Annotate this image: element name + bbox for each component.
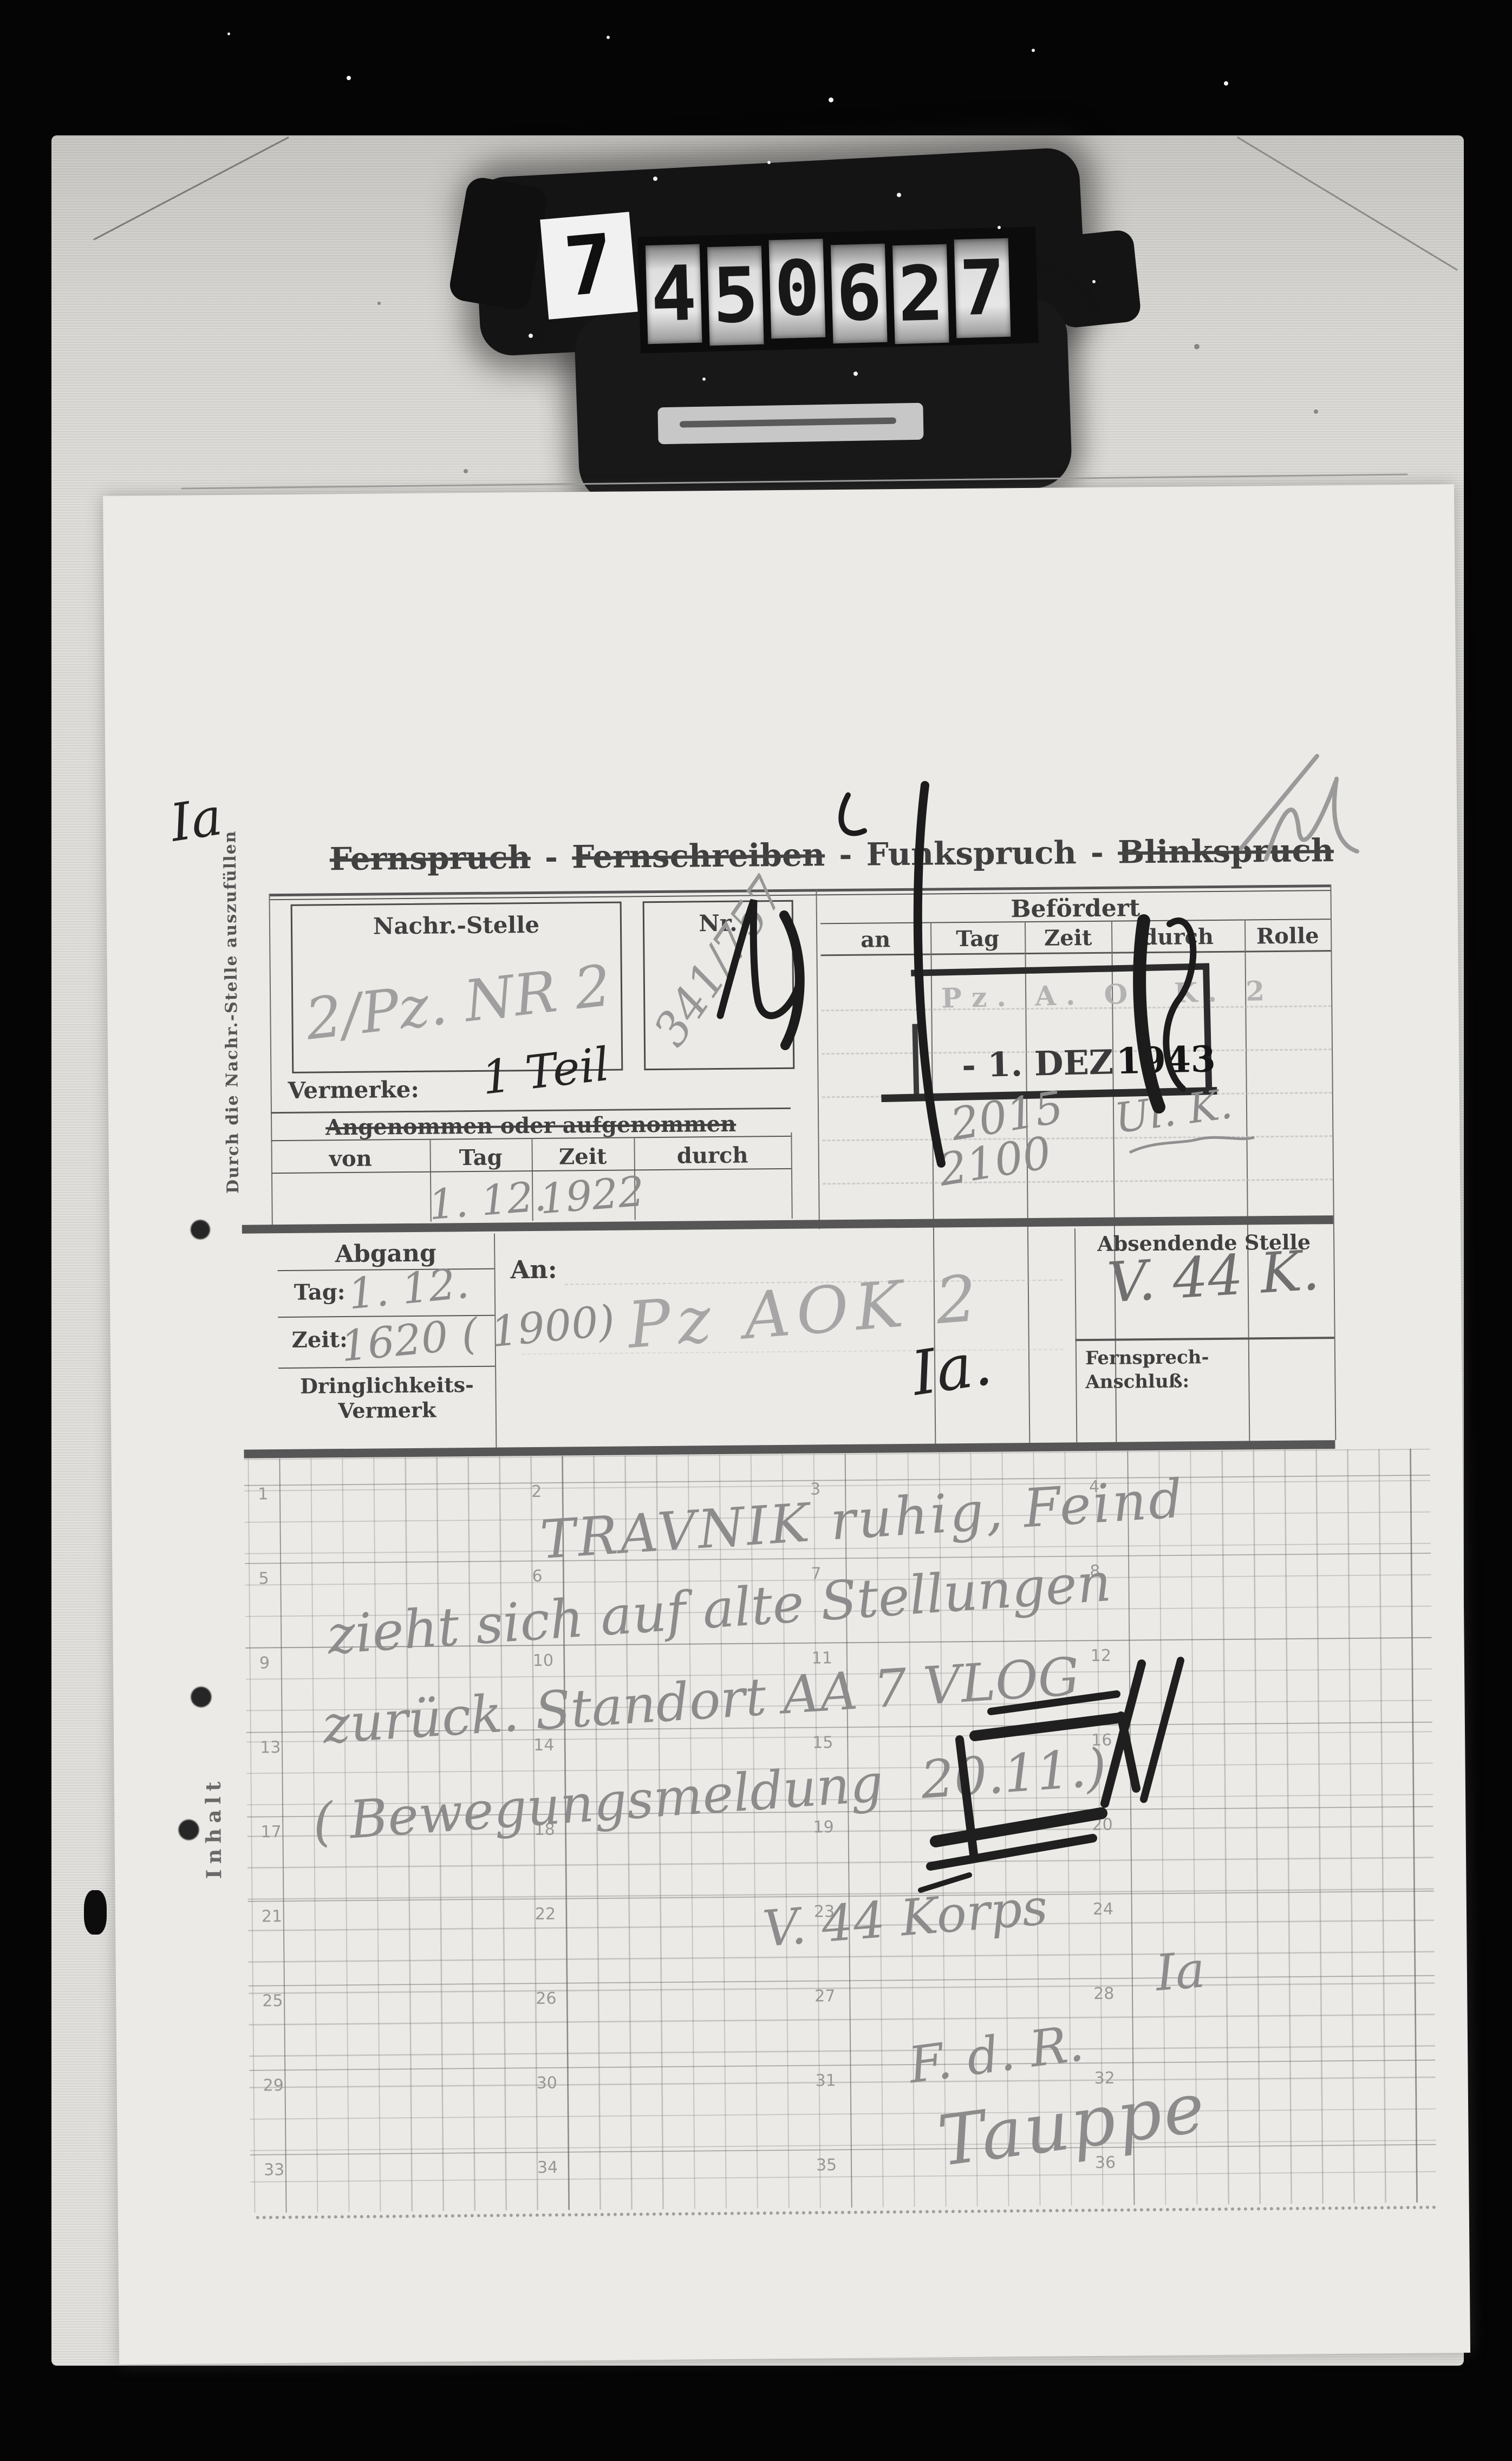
punch-hole [191, 1220, 210, 1239]
befoerdert-col-zeit: Zeit [1025, 925, 1111, 951]
grid-cell-number: 25 [262, 1991, 283, 2010]
microfilm-photo-frame: 7 450627 Durch die Nachr.-Stelle auszufü… [0, 0, 1512, 2461]
date-stamp: Pz. A. O. K. 2 - 1. DEZ 1943 [911, 963, 1212, 1100]
title-separator: - [1079, 834, 1115, 871]
nachr-stelle-label: Nachr.-Stelle [292, 911, 620, 940]
inhalt-label: Inhalt [201, 1773, 226, 1879]
form-left-border [269, 894, 272, 1225]
dringlichkeit-label-2: Vermerk [279, 1397, 496, 1423]
angenommen-col-tag: Tag [430, 1144, 532, 1171]
angenommen-col-durch: durch [634, 1142, 791, 1169]
film-speck [829, 97, 833, 102]
an-label: An: [510, 1255, 557, 1285]
stamp-border [912, 1024, 919, 1101]
befoerdert-col-an: an [820, 927, 930, 953]
angenommen-tag-value: 1. 12. [427, 1171, 548, 1229]
fernsprech-label-2: Anschluß: [1085, 1370, 1189, 1393]
film-speck [1032, 49, 1035, 52]
grid-cell-number: 20 [1092, 1815, 1112, 1834]
grid-cell-number: 30 [536, 2074, 557, 2093]
grid-cell-number: 34 [537, 2158, 558, 2177]
absender-value: V. 44 K. [1105, 1238, 1321, 1316]
counter-digit-window: 2 [892, 244, 949, 344]
counter-digit-window: 5 [707, 246, 764, 346]
title-separator: - [533, 838, 569, 876]
fernsprech-label-1: Fernsprech- [1085, 1346, 1209, 1369]
counter-digit-strip: 450627 [637, 226, 1038, 353]
grid-cell-number: 6 [532, 1567, 542, 1586]
form-title: Fernspruch - Fernschreiben - Funkspruch … [263, 831, 1401, 878]
befoerdert-col-rolle: Rolle [1244, 923, 1331, 949]
form-mid-border [816, 889, 819, 1229]
counter-slot-line [680, 418, 896, 428]
film-speck [607, 36, 610, 39]
title-word: Fernschreiben [569, 836, 828, 875]
angenommen-col-von: von [271, 1145, 430, 1173]
film-speck [227, 32, 230, 35]
grid-cell-number: 9 [259, 1653, 270, 1672]
corner-ia-note: Ia [167, 787, 226, 854]
grid-cell-number: 2 [531, 1482, 542, 1501]
stamp-year: 1943 [1116, 1038, 1216, 1082]
counter-prefix-tab: 7 [540, 212, 637, 320]
counter-digit-window: 6 [831, 244, 888, 344]
grid-cell-number: 27 [814, 1987, 835, 2006]
title-word: Funkspruch [863, 834, 1080, 873]
angenommen-right-line [791, 1132, 792, 1219]
abgang-tag-label: Tag: [294, 1279, 346, 1305]
befoerdert-col-tag: Tag [930, 926, 1025, 952]
angenommen-col-zeit: Zeit [532, 1143, 634, 1170]
grid-cell-number: 29 [263, 2076, 284, 2095]
counter-digit-row: 450627 [646, 233, 1019, 342]
film-speck [1224, 81, 1228, 86]
counter-prefix-digit: 7 [561, 217, 617, 315]
film-speck [347, 76, 351, 80]
margin-instruction-note: Durch die Nachr.-Stelle auszufüllen [221, 893, 243, 1194]
form-right-border [1330, 884, 1336, 1440]
grid-cell-number: 17 [260, 1822, 281, 1841]
message-form-paper: Durch die Nachr.-Stelle auszufüllen Ia F… [103, 484, 1470, 2365]
counter-digit-window: 0 [769, 239, 826, 339]
grid-cell-number: 1 [258, 1485, 268, 1503]
stamp-date: - 1. DEZ [961, 1042, 1114, 1085]
absendende-rule [1076, 1337, 1334, 1341]
grid-cell-number: 33 [264, 2160, 284, 2179]
title-word: Fernspruch [326, 839, 534, 877]
message-line-4-boxed-date: 20.11.) [919, 1737, 1109, 1811]
counter-body-knob [1052, 229, 1142, 329]
grid-cell-number: 13 [260, 1738, 281, 1757]
counter-slot [657, 403, 923, 445]
grid-cell-number: 26 [536, 1989, 556, 2008]
angenommen-zeit-value: 1922 [538, 1167, 646, 1223]
abgang-rule [278, 1366, 495, 1369]
grid-cell-number: 5 [258, 1569, 269, 1588]
punch-hole [178, 1819, 199, 1840]
abgang-tag-value: 1. 12. [346, 1259, 471, 1319]
vermerke-label: Vermerke: [288, 1076, 419, 1104]
befoerdert-row-line [823, 1179, 1333, 1184]
grid-cell-number: 35 [816, 2156, 837, 2174]
counter-digit-window: 4 [646, 244, 702, 344]
stamp-unit-line: Pz. A. O. K. 2 [941, 975, 1275, 1014]
film-notch [84, 1890, 107, 1935]
grid-cell-number: 28 [1093, 1984, 1114, 2003]
counter-digit-window: 7 [954, 238, 1011, 338]
stamp-border [911, 963, 1209, 976]
signature-section: Ia [1153, 1941, 1207, 2002]
title-separator: - [828, 836, 863, 874]
grid-cell-number: 22 [535, 1905, 556, 1924]
grid-cell-number: 19 [813, 1818, 833, 1837]
stamp-date-line: - 1. DEZ 1943 [961, 1038, 1216, 1086]
dringlichkeit-label-1: Dringlichkeits- [278, 1372, 495, 1398]
punch-hole [191, 1687, 211, 1707]
an-section-value: Ia. [907, 1328, 996, 1409]
grid-cell-number: 21 [262, 1907, 282, 1926]
befoerdert-col-durch: durch [1111, 924, 1244, 950]
absendende-left-border [1074, 1228, 1077, 1442]
grid-cell-number: 10 [533, 1651, 553, 1670]
title-word: Blinkspruch [1115, 832, 1337, 871]
grid-cell-number: 24 [1093, 1900, 1113, 1919]
grid-cell-number: 12 [1091, 1646, 1111, 1665]
befoerdert-row-line [822, 1135, 1332, 1141]
grid-cell-number: 31 [815, 2071, 836, 2090]
grid-cell-number: 15 [812, 1733, 833, 1752]
